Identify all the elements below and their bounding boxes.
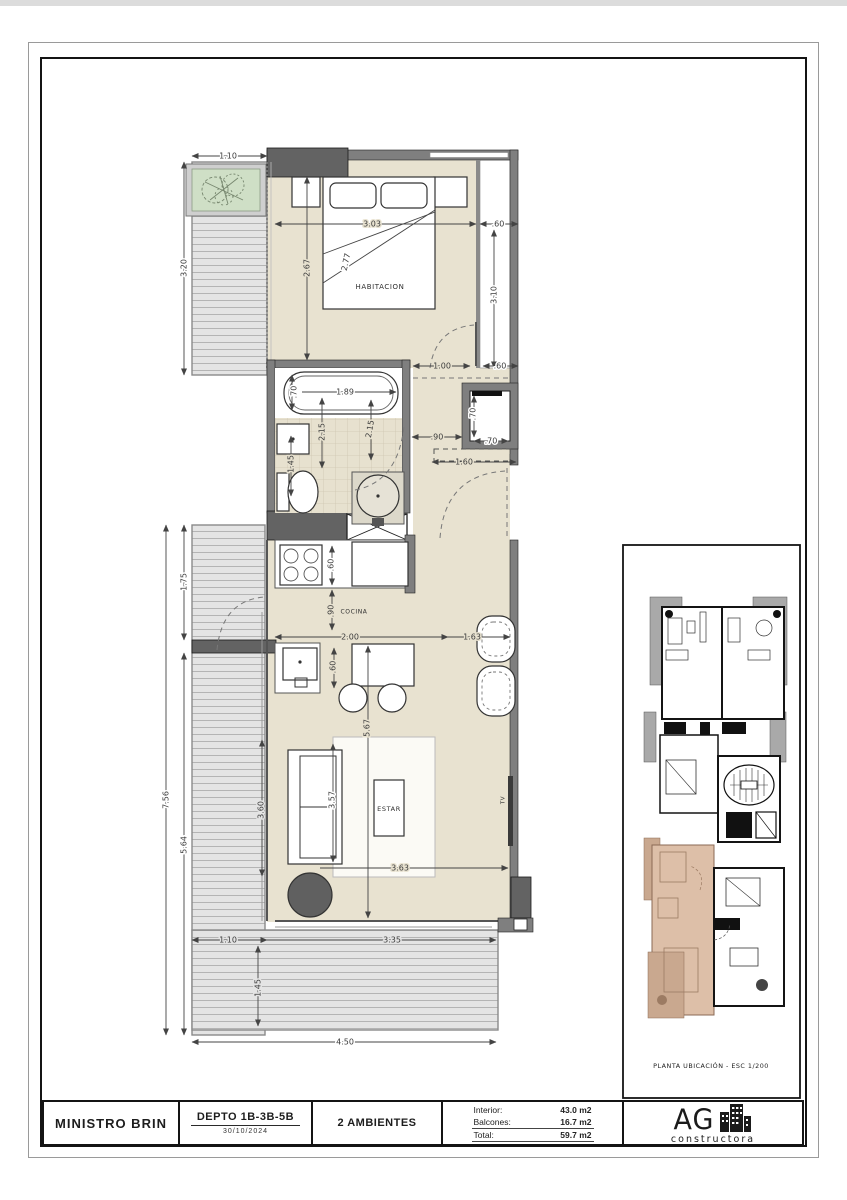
dim: .60 xyxy=(327,559,336,572)
areas-cell: Interior: 43.0 m2 Balcones: 16.7 m2 Tota… xyxy=(443,1102,624,1144)
tv xyxy=(508,776,513,846)
dim: .60 xyxy=(494,362,507,371)
kitchen-sink xyxy=(283,648,317,680)
dim: 3.03 xyxy=(363,220,381,229)
refrigerator xyxy=(352,542,408,586)
total-value: 59.7 m2 xyxy=(560,1130,591,1140)
dim: 2.15 xyxy=(318,423,327,441)
toilet xyxy=(288,471,318,513)
logo-letters: AG xyxy=(674,1106,715,1134)
bedroom-label: HABITACION xyxy=(355,283,404,291)
drawing-date: 30/10/2024 xyxy=(223,1128,268,1135)
dim: .70 xyxy=(485,437,498,446)
top-column xyxy=(267,148,348,177)
balcony-wall-stub xyxy=(192,640,276,653)
dim: 4.50 xyxy=(336,1038,354,1047)
dim: 3.63 xyxy=(391,864,409,873)
location-caption: PLANTA UBICACIÓN - ESC 1/200 xyxy=(653,1061,769,1070)
balcony-top xyxy=(186,162,267,375)
balconies-value: 16.7 m2 xyxy=(560,1117,591,1127)
dim: .70 xyxy=(290,386,299,399)
location-panel: PLANTA UBICACIÓN - ESC 1/200 xyxy=(623,545,800,1098)
dim: 2.00 xyxy=(341,633,359,642)
building-icon xyxy=(718,1102,752,1134)
dim: 1.45 xyxy=(287,455,296,473)
rooms-cell: 2 AMBIENTES xyxy=(313,1102,443,1144)
dim: 1.45 xyxy=(254,979,263,997)
logo-cell: AG xyxy=(624,1102,802,1144)
stool xyxy=(378,684,406,712)
interior-value: 43.0 m2 xyxy=(560,1105,591,1115)
dim: .60 xyxy=(329,661,338,674)
location-mini-plan xyxy=(644,597,787,1018)
living-label: ESTAR xyxy=(377,805,401,813)
pouf xyxy=(288,873,332,917)
dim: 1.63 xyxy=(463,633,481,642)
dim: .90 xyxy=(327,605,336,618)
dim: .60 xyxy=(492,220,505,229)
floor-plan-drawing: HABITACION xyxy=(0,0,847,1200)
dim: 5.67 xyxy=(363,719,372,737)
unit-name: DEPTO 1B-3B-5B xyxy=(191,1111,300,1126)
dim: 1.10 xyxy=(219,936,237,945)
rooms-count: 2 AMBIENTES xyxy=(337,1117,416,1129)
tv-label: TV xyxy=(501,796,507,805)
dim: 1.10 xyxy=(219,152,237,161)
stool xyxy=(339,684,367,712)
project-name: MINISTRO BRIN xyxy=(55,1116,167,1131)
dim: 3.10 xyxy=(490,286,499,304)
dim: 1.00 xyxy=(433,362,451,371)
unit-cell: DEPTO 1B-3B-5B 30/10/2024 xyxy=(180,1102,313,1144)
kitchen-wall-block xyxy=(267,511,347,540)
dim: 1.75 xyxy=(180,573,189,591)
area-row-total: Total: 59.7 m2 xyxy=(472,1129,594,1142)
apartment-plan: HABITACION xyxy=(162,148,534,1047)
dim: .70 xyxy=(469,408,478,421)
dim: 5.64 xyxy=(180,836,189,854)
balcony-bottom xyxy=(192,930,498,1030)
dim: 1.89 xyxy=(336,388,354,397)
closet-strip xyxy=(480,160,510,368)
dim: 3.57 xyxy=(328,791,337,809)
dim: 1.60 xyxy=(455,458,473,467)
corner-column xyxy=(511,877,531,918)
dim: 3.20 xyxy=(180,259,189,277)
dim: 3.60 xyxy=(257,801,266,819)
dim: 7.56 xyxy=(162,791,171,809)
dim: 2.67 xyxy=(303,259,312,277)
total-label: Total: xyxy=(474,1130,494,1140)
project-cell: MINISTRO BRIN xyxy=(44,1102,180,1144)
pillow xyxy=(330,183,376,208)
dim: .90 xyxy=(431,433,444,442)
island xyxy=(352,644,414,686)
company-logo: AG xyxy=(671,1102,755,1145)
drawing-sheet: HABITACION xyxy=(0,0,847,1200)
balconies-label: Balcones: xyxy=(474,1117,511,1127)
area-row-interior: Interior: 43.0 m2 xyxy=(472,1104,594,1116)
areas-table: Interior: 43.0 m2 Balcones: 16.7 m2 Tota… xyxy=(472,1104,594,1142)
pillow xyxy=(381,183,427,208)
interior-label: Interior: xyxy=(474,1105,503,1115)
kitchen-label: COCINA xyxy=(340,609,367,616)
area-row-balconies: Balcones: 16.7 m2 xyxy=(472,1116,594,1129)
dim: 3.35 xyxy=(383,936,401,945)
title-block: MINISTRO BRIN DEPTO 1B-3B-5B 30/10/2024 … xyxy=(42,1100,804,1146)
